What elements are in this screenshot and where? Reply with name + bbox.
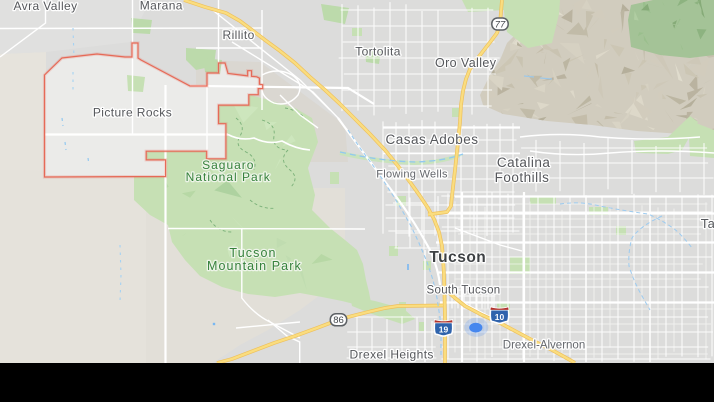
svg-text:South Tucson: South Tucson (427, 285, 501, 297)
svg-text:Flowing Wells: Flowing Wells (376, 169, 448, 181)
svg-text:10: 10 (495, 312, 505, 322)
svg-text:Avra Valley: Avra Valley (14, 0, 78, 13)
svg-text:Rillito: Rillito (223, 28, 255, 42)
svg-text:Drexel-Alvernon: Drexel-Alvernon (503, 340, 585, 352)
svg-text:Ta: Ta (701, 216, 714, 231)
svg-text:Picture Rocks: Picture Rocks (93, 105, 172, 119)
svg-text:Oro Valley: Oro Valley (435, 56, 497, 70)
svg-text:Foothills: Foothills (495, 170, 550, 185)
svg-text:Mountain Park: Mountain Park (207, 259, 302, 273)
svg-text:Catalina: Catalina (497, 155, 551, 170)
svg-text:National Park: National Park (186, 170, 271, 184)
svg-text:Drexel Heights: Drexel Heights (350, 348, 434, 362)
svg-text:Tortolita: Tortolita (355, 45, 401, 59)
svg-text:86: 86 (333, 315, 344, 326)
svg-text:Marana: Marana (140, 0, 183, 13)
svg-text:19: 19 (439, 325, 449, 335)
svg-text:Casas Adobes: Casas Adobes (385, 132, 478, 147)
svg-text:Tucson: Tucson (429, 249, 486, 266)
svg-text:77: 77 (495, 19, 506, 30)
